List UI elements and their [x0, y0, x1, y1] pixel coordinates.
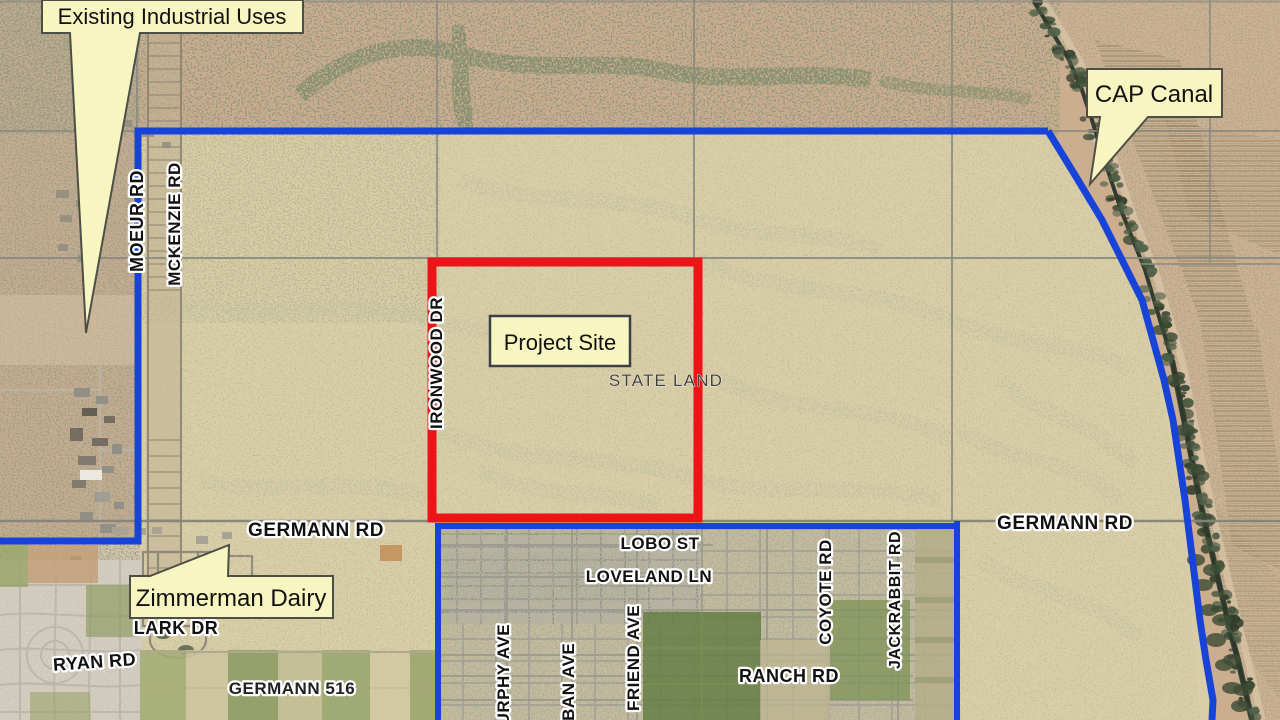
svg-text:LOVELAND LN: LOVELAND LN: [586, 567, 712, 586]
svg-text:JACKRABBIT RD: JACKRABBIT RD: [887, 531, 904, 669]
svg-text:MURPHY AVE: MURPHY AVE: [494, 624, 513, 720]
svg-text:GERMANN 516: GERMANN 516: [229, 679, 355, 698]
svg-text:LARK DR: LARK DR: [134, 618, 219, 638]
svg-text:STATE LAND: STATE LAND: [609, 371, 723, 390]
svg-text:Existing Industrial Uses: Existing Industrial Uses: [58, 4, 287, 29]
svg-text:RANCH RD: RANCH RD: [739, 666, 839, 686]
svg-text:FRIEND AVE: FRIEND AVE: [624, 605, 643, 711]
svg-text:GERMANN RD: GERMANN RD: [997, 513, 1133, 534]
svg-text:MCKENZIE RD: MCKENZIE RD: [165, 162, 184, 286]
svg-text:GERMANN RD: GERMANN RD: [248, 520, 384, 541]
svg-text:COYOTE RD: COYOTE RD: [816, 539, 835, 645]
svg-text:Project Site: Project Site: [504, 330, 617, 355]
svg-text:CAP Canal: CAP Canal: [1095, 81, 1213, 108]
svg-text:ESTEBAN AVE: ESTEBAN AVE: [559, 643, 578, 720]
svg-text:LOBO ST: LOBO ST: [620, 534, 699, 553]
svg-text:Zimmerman Dairy: Zimmerman Dairy: [136, 585, 327, 612]
svg-text:IRONWOOD DR: IRONWOOD DR: [427, 297, 446, 429]
svg-text:MOEUR RD: MOEUR RD: [127, 170, 147, 272]
